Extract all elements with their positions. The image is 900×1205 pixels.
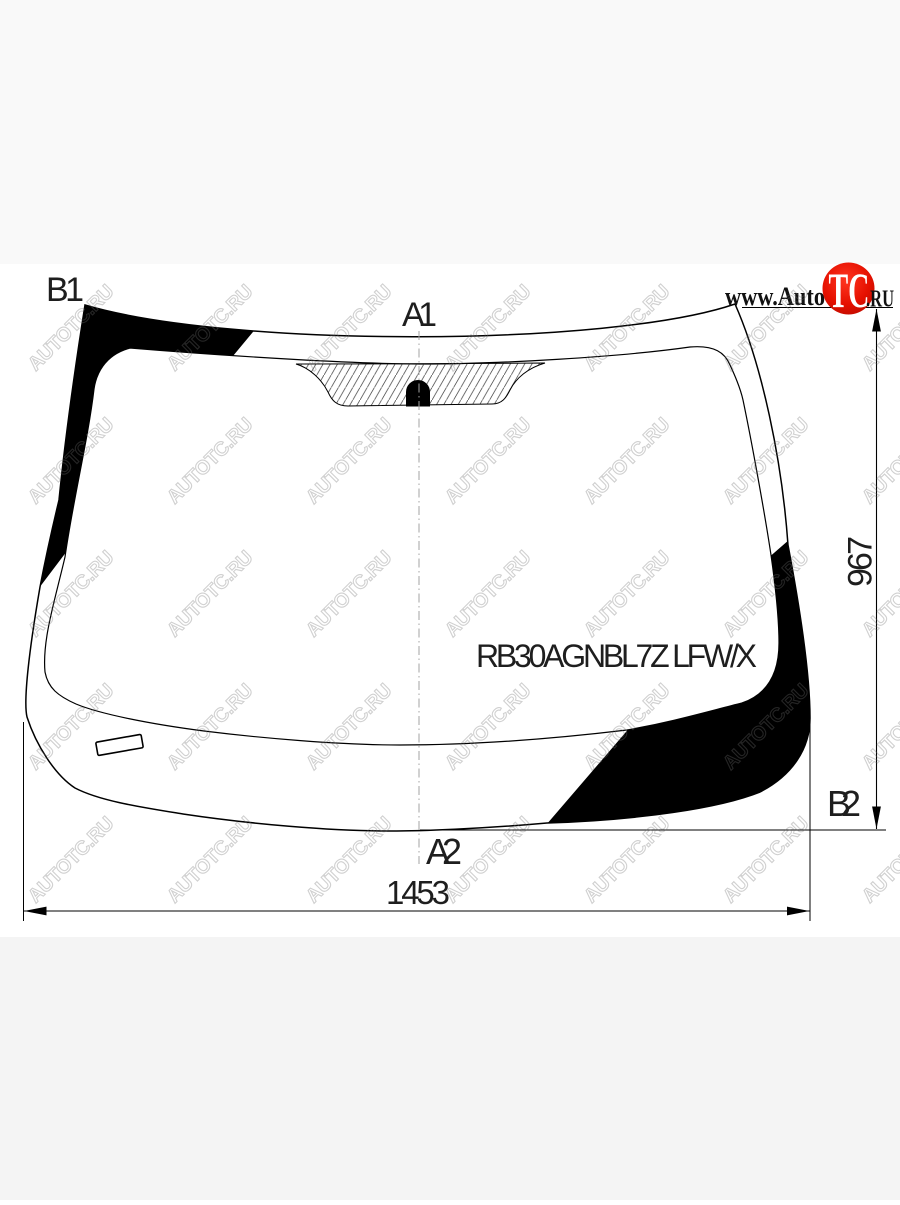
svg-text:TC: TC — [829, 262, 870, 318]
svg-text:B1: B1 — [46, 271, 84, 309]
svg-text:A2: A2 — [426, 831, 462, 872]
svg-text:967: 967 — [842, 536, 880, 587]
svg-text:B2: B2 — [827, 783, 861, 824]
svg-text:RB30AGNBL7Z LFW/X: RB30AGNBL7Z LFW/X — [476, 638, 757, 674]
svg-text:A1: A1 — [402, 296, 437, 334]
svg-text:.RU: .RU — [866, 287, 894, 313]
